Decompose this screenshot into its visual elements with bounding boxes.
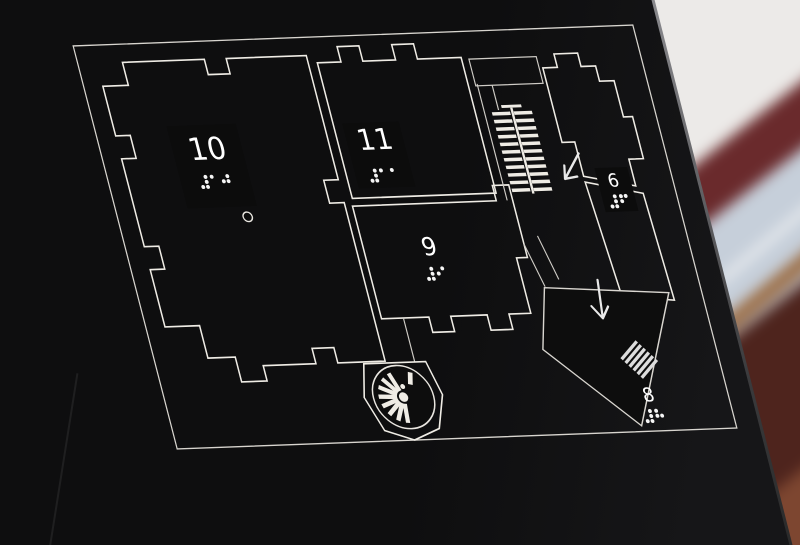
spiral-staircase-tower	[344, 317, 454, 441]
braille-8	[643, 409, 666, 424]
corridor-top	[469, 57, 543, 86]
room-9: 9	[349, 185, 546, 334]
braille-9	[424, 266, 447, 281]
floor-plan: 10 11 9	[72, 24, 742, 456]
room-9-number: 9	[418, 232, 441, 262]
corridor-to-wing	[522, 236, 561, 288]
tower-neck	[403, 318, 414, 362]
corridor-link	[492, 85, 498, 110]
tactile-map-photo: 10 11 9	[0, 0, 800, 545]
room-11: 11	[313, 42, 496, 198]
double-flight-staircase-icon	[490, 104, 553, 194]
door-circle-icon	[242, 212, 254, 222]
room-9-outline	[349, 185, 546, 334]
room-6-outline	[539, 52, 650, 189]
floor-plan-svg: 10 11 9	[72, 24, 742, 456]
corridor-wall	[477, 84, 507, 201]
corridors	[469, 57, 595, 288]
wing-outline	[527, 283, 702, 429]
